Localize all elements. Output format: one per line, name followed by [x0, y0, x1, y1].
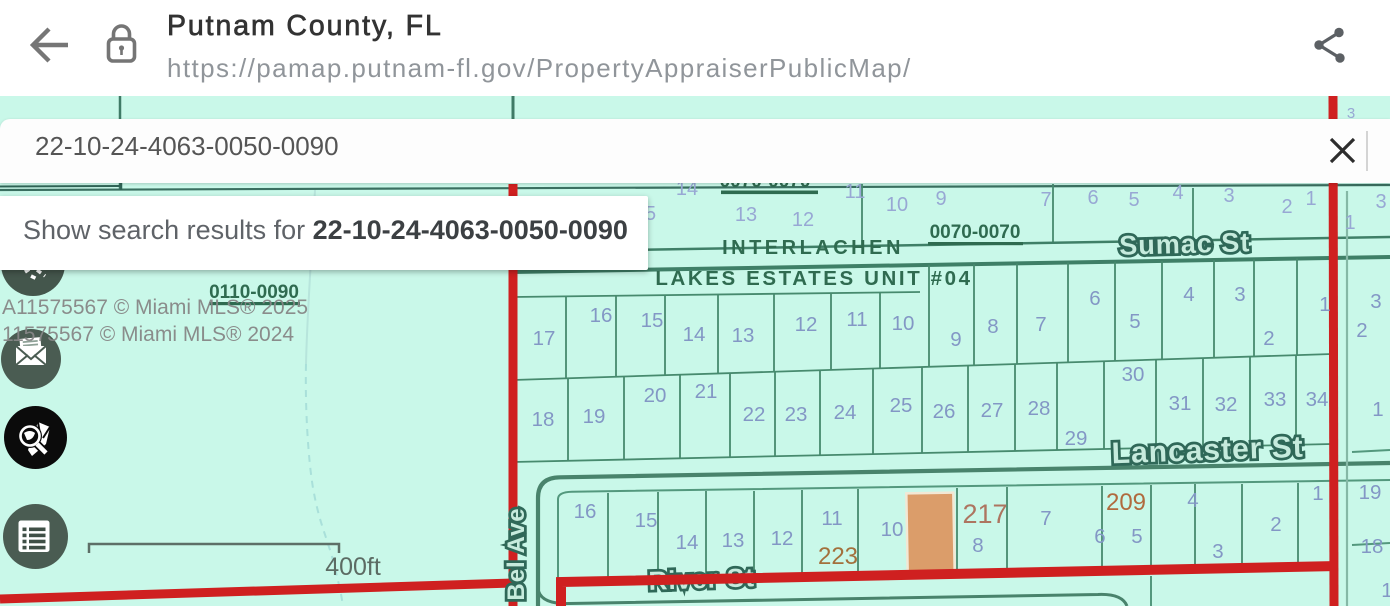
svg-text:Sumac St: Sumac St: [1119, 227, 1251, 260]
svg-text:10: 10: [881, 518, 904, 541]
svg-text:25: 25: [890, 394, 913, 417]
svg-text:217: 217: [962, 499, 1007, 529]
svg-text:15: 15: [635, 509, 658, 532]
svg-text:23: 23: [785, 403, 808, 426]
svg-text:12: 12: [771, 527, 794, 550]
svg-text:3: 3: [1212, 540, 1223, 563]
svg-text:6: 6: [1094, 525, 1105, 548]
svg-text:1: 1: [1372, 398, 1383, 421]
svg-text:5: 5: [1131, 525, 1142, 548]
svg-text:1: 1: [1344, 212, 1355, 234]
svg-text:13: 13: [722, 529, 745, 552]
svg-text:5: 5: [1128, 189, 1139, 211]
svg-text:1: 1: [1319, 293, 1330, 316]
svg-text:29: 29: [1065, 427, 1088, 450]
svg-text:2: 2: [1270, 513, 1281, 536]
svg-text:9: 9: [935, 188, 946, 210]
svg-text:Lancaster St: Lancaster St: [1111, 431, 1304, 471]
svg-text:2: 2: [1263, 327, 1274, 350]
svg-text:16: 16: [574, 500, 597, 523]
svg-text:209: 209: [1106, 489, 1146, 516]
svg-text:4: 4: [1187, 489, 1198, 512]
svg-text:14: 14: [676, 531, 699, 554]
svg-text:19: 19: [1359, 481, 1382, 504]
svg-text:1: 1: [1381, 579, 1390, 602]
svg-text:32: 32: [1215, 393, 1238, 416]
svg-text:LAKES ESTATES UNIT #04: LAKES ESTATES UNIT #04: [655, 267, 972, 290]
svg-text:27: 27: [981, 399, 1004, 422]
svg-text:11: 11: [845, 181, 866, 203]
svg-text:3: 3: [1375, 191, 1386, 213]
svg-text:10: 10: [892, 312, 915, 335]
svg-text:24: 24: [834, 401, 857, 424]
svg-text:6: 6: [1087, 187, 1098, 209]
svg-text:31: 31: [1169, 392, 1192, 415]
svg-text:8: 8: [972, 534, 983, 557]
svg-text:6: 6: [1089, 287, 1100, 310]
svg-text:15: 15: [641, 309, 664, 332]
svg-text:33: 33: [1264, 388, 1287, 411]
svg-text:14: 14: [683, 323, 706, 346]
svg-text:1: 1: [1305, 188, 1316, 210]
svg-text:11: 11: [821, 507, 842, 530]
svg-text:7: 7: [1040, 189, 1051, 211]
svg-text:28: 28: [1028, 397, 1051, 420]
svg-text:3: 3: [1234, 283, 1245, 306]
svg-text:22: 22: [743, 403, 766, 426]
svg-text:10: 10: [886, 194, 908, 216]
svg-text:4: 4: [1172, 182, 1183, 204]
svg-text:7: 7: [1040, 507, 1051, 530]
svg-text:2: 2: [1281, 196, 1292, 218]
svg-text:18: 18: [1361, 535, 1384, 558]
svg-text:13: 13: [735, 204, 757, 226]
svg-text:4: 4: [1183, 283, 1194, 306]
svg-text:3: 3: [1223, 185, 1234, 207]
svg-text:INTERLACHEN: INTERLACHEN: [722, 237, 904, 259]
svg-text:2: 2: [1356, 319, 1367, 342]
svg-text:7: 7: [1035, 313, 1046, 336]
svg-text:17: 17: [533, 327, 556, 350]
svg-text:18: 18: [532, 408, 555, 431]
svg-text:1: 1: [1312, 482, 1323, 505]
svg-text:400ft: 400ft: [325, 553, 381, 581]
svg-text:30: 30: [1122, 363, 1145, 386]
svg-text:5: 5: [1129, 310, 1140, 333]
svg-text:0070-0070: 0070-0070: [930, 222, 1021, 243]
svg-text:3: 3: [1370, 290, 1381, 313]
svg-text:19: 19: [583, 405, 606, 428]
svg-text:8: 8: [987, 315, 998, 338]
svg-text:13: 13: [732, 324, 755, 347]
svg-text:20: 20: [644, 384, 667, 407]
svg-text:11: 11: [846, 308, 867, 331]
svg-text:9: 9: [950, 328, 961, 351]
svg-text:21: 21: [695, 380, 718, 403]
svg-text:16: 16: [590, 304, 613, 327]
svg-text:Bel Ave: Bel Ave: [503, 507, 530, 600]
svg-text:26: 26: [933, 400, 956, 423]
svg-text:12: 12: [792, 209, 814, 231]
svg-text:223: 223: [818, 543, 858, 570]
svg-text:34: 34: [1306, 388, 1329, 411]
svg-text:12: 12: [795, 313, 818, 336]
